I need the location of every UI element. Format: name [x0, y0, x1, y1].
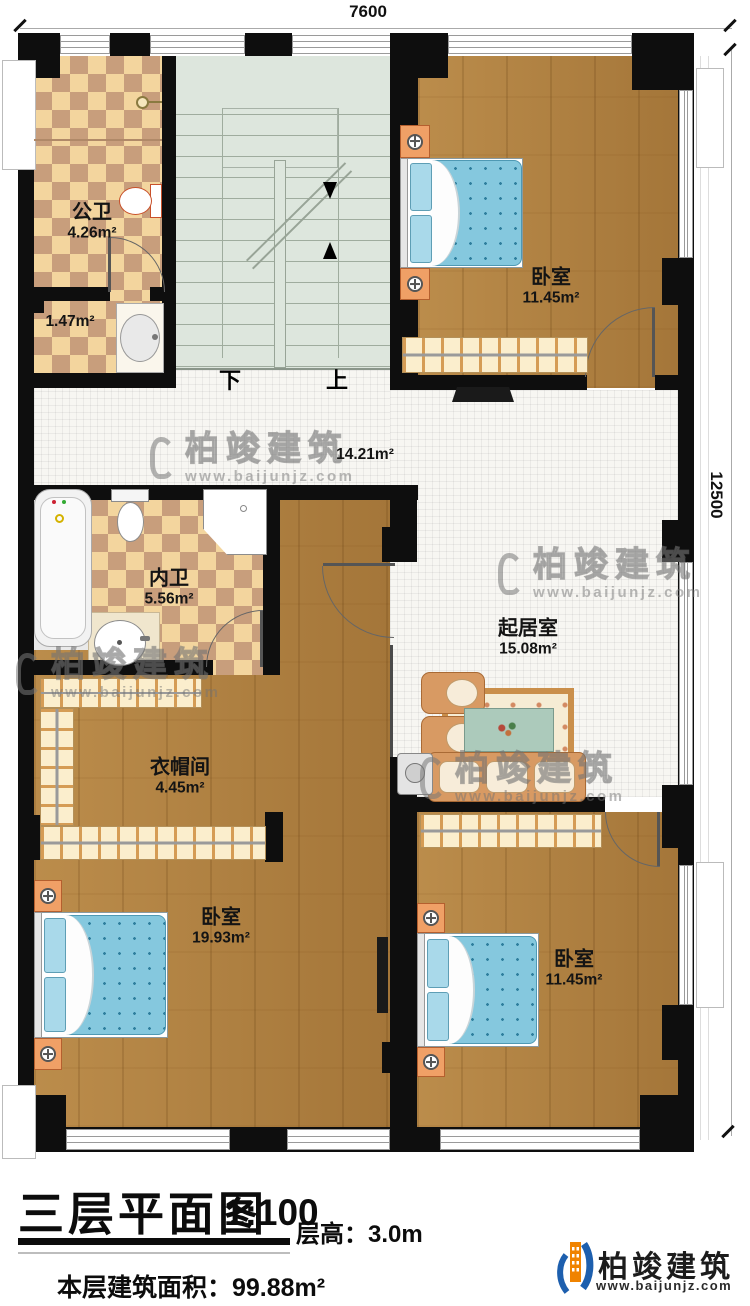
company-logo-icon — [556, 1236, 594, 1298]
toilet-icon — [117, 502, 144, 542]
faucet-dot — [140, 636, 150, 641]
title-underline — [18, 1238, 290, 1245]
wall-line — [390, 645, 393, 757]
stair-direction-arrow-icon — [323, 182, 337, 199]
faucet-dot — [152, 334, 158, 340]
wardrobe — [40, 708, 74, 826]
bed-pillows — [410, 163, 432, 263]
right-dimension-line — [731, 50, 732, 1136]
floor-height-label: 层高：3.0m — [296, 1214, 423, 1249]
dim-tick — [13, 19, 26, 32]
nightstand — [417, 903, 445, 933]
stair-direction-arrow-icon — [323, 242, 337, 259]
bed-headboard — [417, 933, 425, 1047]
top-dimension-line — [20, 28, 732, 29]
stair-edge-line — [176, 368, 390, 370]
shower-head-arm — [148, 101, 162, 103]
nightstand — [417, 1047, 445, 1077]
wall-lobby-bottom — [18, 373, 176, 388]
right-dimension-label: 12500 — [706, 471, 726, 518]
wardrobe — [420, 814, 602, 848]
wall — [110, 33, 150, 56]
room-label-bedroom-top-right: 卧室 11.45m² — [523, 267, 580, 308]
room-label-hallway: 14.21m² — [336, 446, 394, 464]
floor-plan-sheet: 7600 12500 下 上 — [0, 0, 750, 1306]
stair-up-label: 上 — [326, 363, 348, 395]
bed-headboard — [34, 912, 42, 1038]
wall-pier — [662, 785, 694, 848]
dim-tick — [723, 19, 736, 32]
pillow — [44, 977, 66, 1032]
window — [66, 1129, 230, 1150]
wall-pier — [662, 520, 694, 562]
nightstand — [400, 125, 430, 158]
nightstand — [34, 880, 62, 912]
wall-public-bath-right — [162, 56, 176, 378]
wall-bedroom-divider — [390, 757, 417, 1152]
tv-icon — [377, 937, 388, 1013]
window — [287, 1129, 390, 1150]
lamp-icon — [407, 276, 423, 292]
window — [448, 35, 632, 54]
lamp-icon — [40, 888, 56, 904]
wardrobe — [40, 826, 266, 860]
top-dimension-label: 7600 — [349, 2, 387, 22]
window — [679, 865, 693, 1005]
window-sill — [696, 862, 724, 1008]
lamp-icon — [40, 1046, 56, 1062]
window — [150, 35, 245, 54]
pillow — [410, 163, 432, 211]
window-sill — [2, 60, 36, 170]
room-label-living-room: 起居室 15.08m² — [498, 618, 558, 659]
faucet-cold-dot — [62, 500, 66, 504]
toilet-tank — [111, 489, 149, 502]
wall-pier — [265, 812, 283, 862]
stair-stringer — [274, 160, 286, 368]
sofa-cushion — [534, 761, 575, 793]
plant-icon — [405, 763, 425, 783]
wall-left — [18, 33, 34, 1152]
stairwell — [176, 56, 390, 370]
drain-icon — [55, 514, 64, 523]
wardrobe — [402, 337, 588, 373]
lamp-icon — [423, 910, 439, 926]
shower-partition-line — [34, 139, 162, 141]
dim-tick — [723, 43, 736, 56]
window — [679, 562, 693, 785]
stair-guide-line — [222, 108, 223, 358]
nightstand — [400, 268, 430, 300]
pillow — [44, 918, 66, 973]
room-label-private-bath: 内卫 5.56m² — [144, 568, 193, 609]
stair-down-label: 下 — [219, 363, 241, 395]
stair-guide-line — [338, 108, 339, 358]
tv-icon — [452, 387, 514, 402]
title-underline-thin — [18, 1252, 290, 1254]
dim-tick — [721, 1125, 734, 1138]
room-label-bath-lobby: 1.47m² — [45, 313, 94, 331]
wall — [415, 33, 448, 78]
wall — [245, 33, 292, 56]
sofa-cushion — [439, 761, 480, 793]
pillow — [427, 939, 449, 988]
pillow — [410, 215, 432, 263]
window-sill — [2, 1085, 36, 1159]
toilet-icon — [119, 187, 152, 215]
faucet-hot-dot — [52, 500, 56, 504]
room-label-bedroom-bottom-left: 卧室 19.93m² — [192, 907, 250, 948]
wardrobe — [40, 678, 202, 708]
window — [440, 1129, 640, 1150]
room-label-bedroom-bottom-right: 卧室 11.45m² — [546, 949, 603, 990]
room-label-public-bath: 公卫 4.26m² — [67, 202, 116, 243]
window — [679, 90, 693, 258]
wall-pier — [382, 527, 417, 562]
pillow — [427, 992, 449, 1041]
lamp-icon — [423, 1054, 439, 1070]
sofa — [428, 752, 586, 802]
window — [60, 35, 110, 54]
wall-pier — [662, 1005, 694, 1060]
table-flowers — [494, 718, 520, 738]
bed-headboard — [400, 158, 408, 268]
sofa-cushion — [486, 761, 527, 793]
bed-pillows — [44, 918, 66, 1032]
lamp-icon — [407, 134, 423, 150]
shower-drain-dot — [240, 505, 247, 512]
company-website: www.baijunjz.com — [596, 1278, 732, 1293]
wall-pier — [662, 258, 694, 305]
floor-area-label: 本层建筑面积：99.88m² — [57, 1268, 325, 1304]
stair-landing-outline — [222, 108, 338, 168]
bed-pillows — [427, 939, 449, 1041]
window-sill — [696, 68, 724, 168]
wall-pier — [382, 1042, 390, 1073]
room-label-cloakroom: 衣帽间 4.45m² — [150, 757, 210, 798]
drain-dot — [117, 640, 122, 645]
wall — [655, 375, 694, 390]
nightstand — [34, 1038, 62, 1070]
wall — [34, 287, 110, 301]
